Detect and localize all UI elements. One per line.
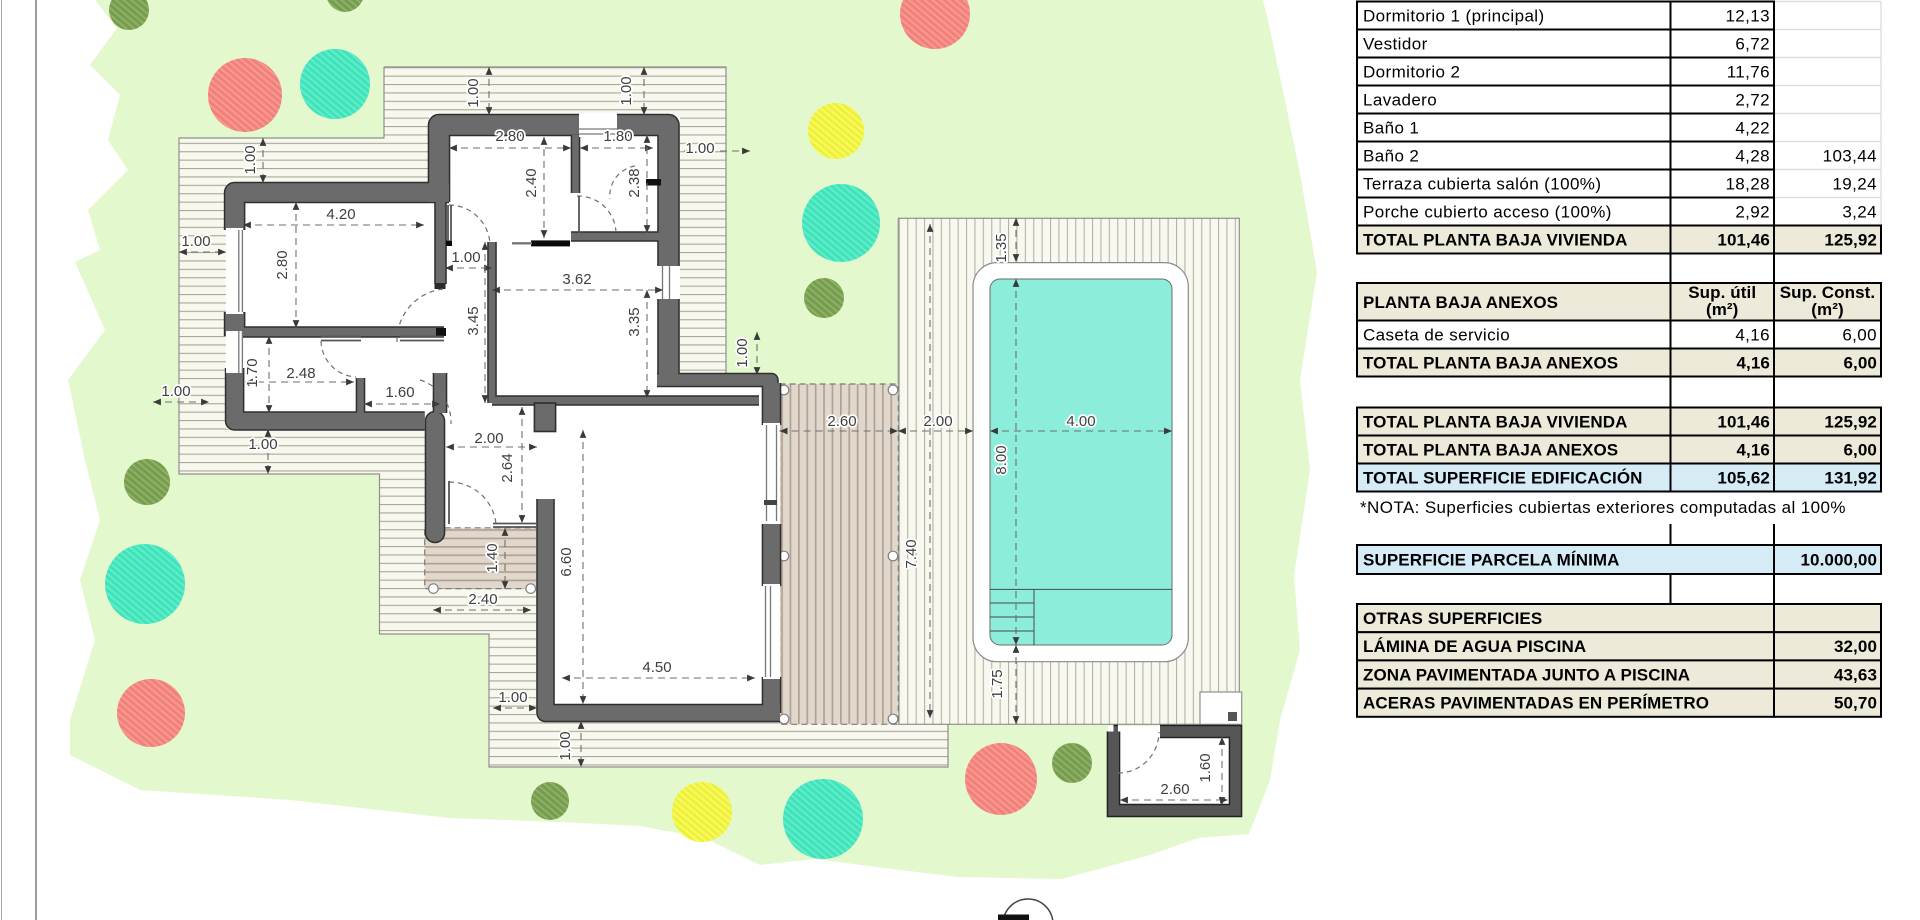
- svg-text:LÁMINA DE AGUA PISCINA: LÁMINA DE AGUA PISCINA: [1363, 637, 1586, 656]
- svg-text:Vestidor: Vestidor: [1363, 35, 1428, 54]
- svg-text:2.38: 2.38: [626, 168, 643, 197]
- svg-text:*NOTA: Superficies cubiertas e: *NOTA: Superficies cubiertas exteriores …: [1360, 498, 1846, 517]
- svg-text:1.00: 1.00: [685, 140, 714, 157]
- svg-text:4.50: 4.50: [642, 659, 671, 676]
- svg-text:ZONA PAVIMENTADA JUNTO A PISCI: ZONA PAVIMENTADA JUNTO A PISCINA: [1363, 665, 1690, 684]
- svg-text:6,00: 6,00: [1844, 441, 1878, 460]
- svg-text:Terraza cubierta salón (100%): Terraza cubierta salón (100%): [1363, 175, 1601, 194]
- svg-text:Baño 1: Baño 1: [1363, 119, 1419, 138]
- svg-text:1.00: 1.00: [451, 249, 480, 266]
- svg-text:2.80: 2.80: [495, 128, 524, 145]
- svg-text:125,92: 125,92: [1824, 231, 1877, 250]
- svg-text:(m²): (m²): [1811, 300, 1844, 319]
- svg-text:101,46: 101,46: [1717, 231, 1770, 250]
- svg-text:(m²): (m²): [1706, 300, 1739, 319]
- svg-text:3,24: 3,24: [1842, 203, 1877, 222]
- svg-text:1.80: 1.80: [603, 128, 632, 145]
- svg-text:2.40: 2.40: [523, 168, 540, 197]
- svg-text:Caseta de servicio: Caseta de servicio: [1363, 326, 1510, 345]
- svg-text:Baño 2: Baño 2: [1363, 147, 1419, 166]
- svg-text:105,62: 105,62: [1717, 469, 1770, 488]
- svg-text:1.00: 1.00: [734, 338, 751, 367]
- svg-text:8.00: 8.00: [993, 445, 1010, 474]
- svg-text:2.00: 2.00: [474, 430, 503, 447]
- svg-text:1.60: 1.60: [385, 384, 414, 401]
- svg-text:101,46: 101,46: [1717, 413, 1770, 432]
- svg-text:2.60: 2.60: [827, 413, 856, 430]
- svg-text:2.40: 2.40: [468, 591, 497, 608]
- svg-text:Dormitorio 1 (principal): Dormitorio 1 (principal): [1363, 7, 1545, 26]
- svg-text:1.75: 1.75: [989, 669, 1006, 698]
- svg-text:6,72: 6,72: [1735, 35, 1770, 54]
- svg-text:2.00: 2.00: [923, 413, 952, 430]
- svg-text:3.35: 3.35: [626, 307, 643, 336]
- svg-text:4.20: 4.20: [326, 206, 355, 223]
- svg-text:1.35: 1.35: [993, 233, 1010, 262]
- svg-text:TOTAL PLANTA BAJA ANEXOS: TOTAL PLANTA BAJA ANEXOS: [1363, 441, 1618, 460]
- svg-text:4.00: 4.00: [1066, 413, 1095, 430]
- svg-text:PLANTA BAJA ANEXOS: PLANTA BAJA ANEXOS: [1363, 293, 1558, 312]
- svg-text:1.00: 1.00: [557, 731, 574, 760]
- svg-text:OTRAS SUPERFICIES: OTRAS SUPERFICIES: [1363, 609, 1542, 628]
- svg-text:ACERAS PAVIMENTADAS EN PERÍMET: ACERAS PAVIMENTADAS EN PERÍMETRO: [1363, 694, 1709, 713]
- svg-text:7.40: 7.40: [903, 539, 920, 568]
- svg-text:TOTAL PLANTA BAJA VIVIENDA: TOTAL PLANTA BAJA VIVIENDA: [1363, 231, 1628, 250]
- svg-text:2,72: 2,72: [1735, 91, 1770, 110]
- svg-text:1.00: 1.00: [248, 436, 277, 453]
- svg-text:TOTAL PLANTA BAJA VIVIENDA: TOTAL PLANTA BAJA VIVIENDA: [1363, 413, 1628, 432]
- svg-text:2.80: 2.80: [274, 250, 291, 279]
- svg-text:1.00: 1.00: [161, 383, 190, 400]
- svg-text:2.64: 2.64: [499, 453, 516, 482]
- svg-text:6.60: 6.60: [558, 547, 575, 576]
- svg-text:103,44: 103,44: [1823, 147, 1877, 166]
- svg-text:TOTAL SUPERFICIE EDIFICACIÓN: TOTAL SUPERFICIE EDIFICACIÓN: [1363, 469, 1643, 488]
- svg-text:1.70: 1.70: [244, 358, 261, 387]
- svg-text:50,70: 50,70: [1834, 694, 1877, 713]
- svg-text:6,00: 6,00: [1844, 354, 1878, 373]
- svg-text:12,13: 12,13: [1725, 7, 1770, 26]
- svg-text:4,16: 4,16: [1737, 354, 1771, 373]
- svg-text:4,28: 4,28: [1735, 147, 1770, 166]
- svg-text:2,92: 2,92: [1735, 203, 1770, 222]
- svg-text:4,22: 4,22: [1735, 119, 1770, 138]
- svg-text:1.40: 1.40: [484, 543, 501, 572]
- svg-text:Porche cubierto acceso (100%): Porche cubierto acceso (100%): [1363, 203, 1612, 222]
- svg-text:131,92: 131,92: [1824, 469, 1877, 488]
- svg-text:6,00: 6,00: [1842, 326, 1877, 345]
- svg-text:2.60: 2.60: [1160, 781, 1189, 798]
- svg-text:3.45: 3.45: [465, 306, 482, 335]
- svg-text:1.00: 1.00: [618, 76, 635, 105]
- svg-text:10.000,00: 10.000,00: [1800, 551, 1877, 570]
- svg-text:Dormitorio 2: Dormitorio 2: [1363, 63, 1460, 82]
- svg-text:Lavadero: Lavadero: [1363, 91, 1437, 110]
- svg-text:SUPERFICIE PARCELA MÍNIMA: SUPERFICIE PARCELA MÍNIMA: [1363, 551, 1620, 570]
- svg-text:125,92: 125,92: [1824, 413, 1877, 432]
- svg-text:1.00: 1.00: [181, 233, 210, 250]
- svg-text:4,16: 4,16: [1737, 441, 1771, 460]
- svg-text:43,63: 43,63: [1834, 665, 1877, 684]
- svg-text:32,00: 32,00: [1834, 637, 1877, 656]
- svg-text:1.00: 1.00: [242, 145, 259, 174]
- svg-text:19,24: 19,24: [1832, 175, 1877, 194]
- svg-text:3.62: 3.62: [562, 271, 591, 288]
- svg-text:1.60: 1.60: [1197, 753, 1214, 782]
- svg-text:1.00: 1.00: [498, 689, 527, 706]
- svg-text:2.48: 2.48: [286, 365, 315, 382]
- svg-text:TOTAL PLANTA BAJA ANEXOS: TOTAL PLANTA BAJA ANEXOS: [1363, 354, 1618, 373]
- svg-text:11,76: 11,76: [1727, 63, 1770, 82]
- svg-text:4,16: 4,16: [1735, 326, 1770, 345]
- svg-text:1.00: 1.00: [465, 78, 482, 107]
- svg-text:18,28: 18,28: [1725, 175, 1770, 194]
